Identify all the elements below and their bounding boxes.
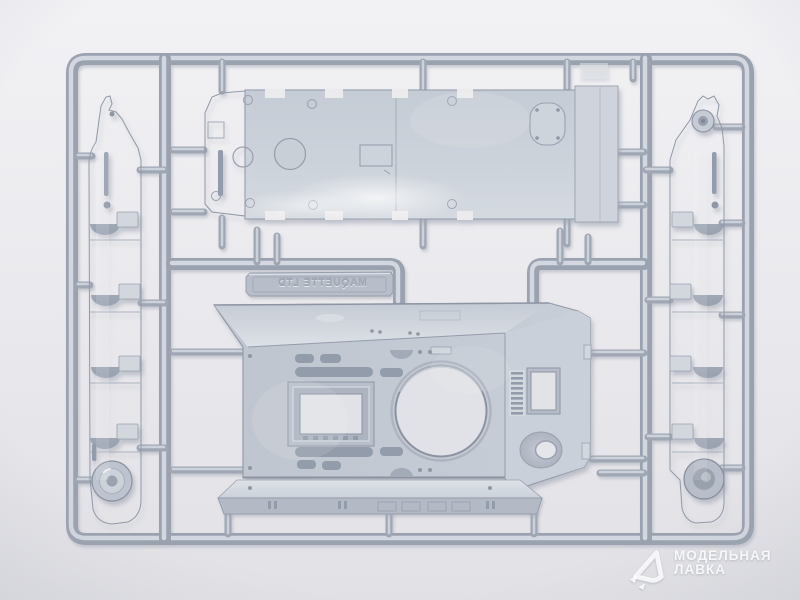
watermark-text: МОДЕЛЬНАЯ ЛАВКА — [674, 545, 772, 577]
photo-vignette — [0, 0, 800, 600]
shop-logo-icon — [627, 545, 667, 591]
watermark: МОДЕЛЬНАЯ ЛАВКА — [627, 545, 772, 591]
watermark-line1: МОДЕЛЬНАЯ — [674, 549, 772, 563]
sprue-product-photo: MAQUETTE LTD МОДЕЛЬНАЯ ЛАВКА — [0, 0, 800, 600]
watermark-line2: ЛАВКА — [674, 563, 772, 577]
sprue-image — [0, 0, 800, 600]
brand-bar-embossed-text: MAQUETTE LTD — [256, 275, 388, 293]
